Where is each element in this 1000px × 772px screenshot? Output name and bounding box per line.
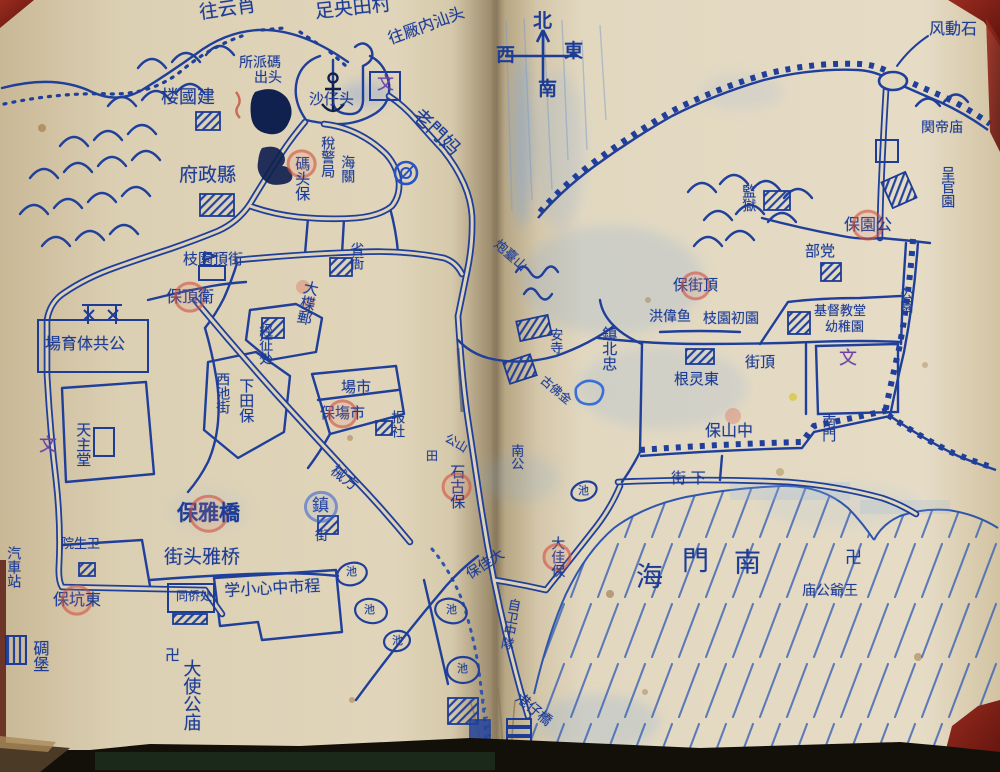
compass-arrow-icon	[0, 0, 1000, 772]
compass-east: 東	[564, 36, 583, 63]
hand-drawn-town-map-photo: 北 南 西 東 往云肖足央田村往厰内汕头所派碼出头楼國建沙仔头文老門妈府政縣碼头…	[0, 0, 1000, 772]
compass-west: 西	[496, 40, 515, 67]
compass-north: 北	[533, 6, 552, 33]
compass-south: 南	[538, 74, 557, 101]
